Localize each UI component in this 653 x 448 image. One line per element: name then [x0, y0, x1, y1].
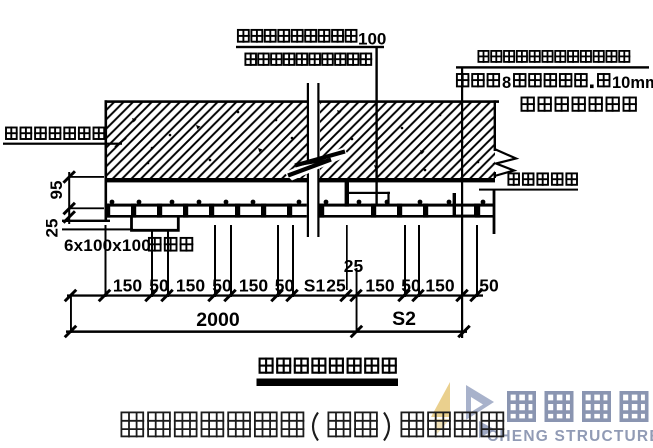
svg-text:150: 150	[239, 276, 268, 296]
svg-text:50: 50	[149, 276, 169, 296]
svg-text:50: 50	[212, 276, 232, 296]
svg-text:8: 8	[502, 74, 511, 92]
svg-text:50: 50	[479, 276, 499, 296]
svg-text:S1: S1	[304, 276, 326, 296]
svg-text:50: 50	[275, 276, 295, 296]
svg-text:25: 25	[326, 276, 346, 296]
svg-text:150: 150	[176, 276, 205, 296]
svg-text:S2: S2	[392, 308, 416, 330]
svg-text:150: 150	[425, 276, 454, 296]
svg-text:CHENG STRUCTURE: CHENG STRUCTURE	[487, 428, 653, 445]
svg-text:25: 25	[344, 256, 364, 276]
svg-text:100: 100	[358, 30, 386, 49]
svg-text:25: 25	[43, 219, 62, 238]
svg-text:150: 150	[113, 276, 142, 296]
svg-text:150: 150	[365, 276, 394, 296]
svg-text:6x100x100: 6x100x100	[64, 236, 151, 255]
svg-text:10mm: 10mm	[612, 74, 653, 92]
svg-text:50: 50	[401, 276, 421, 296]
svg-text:95: 95	[47, 181, 66, 200]
svg-text:2000: 2000	[196, 309, 240, 331]
